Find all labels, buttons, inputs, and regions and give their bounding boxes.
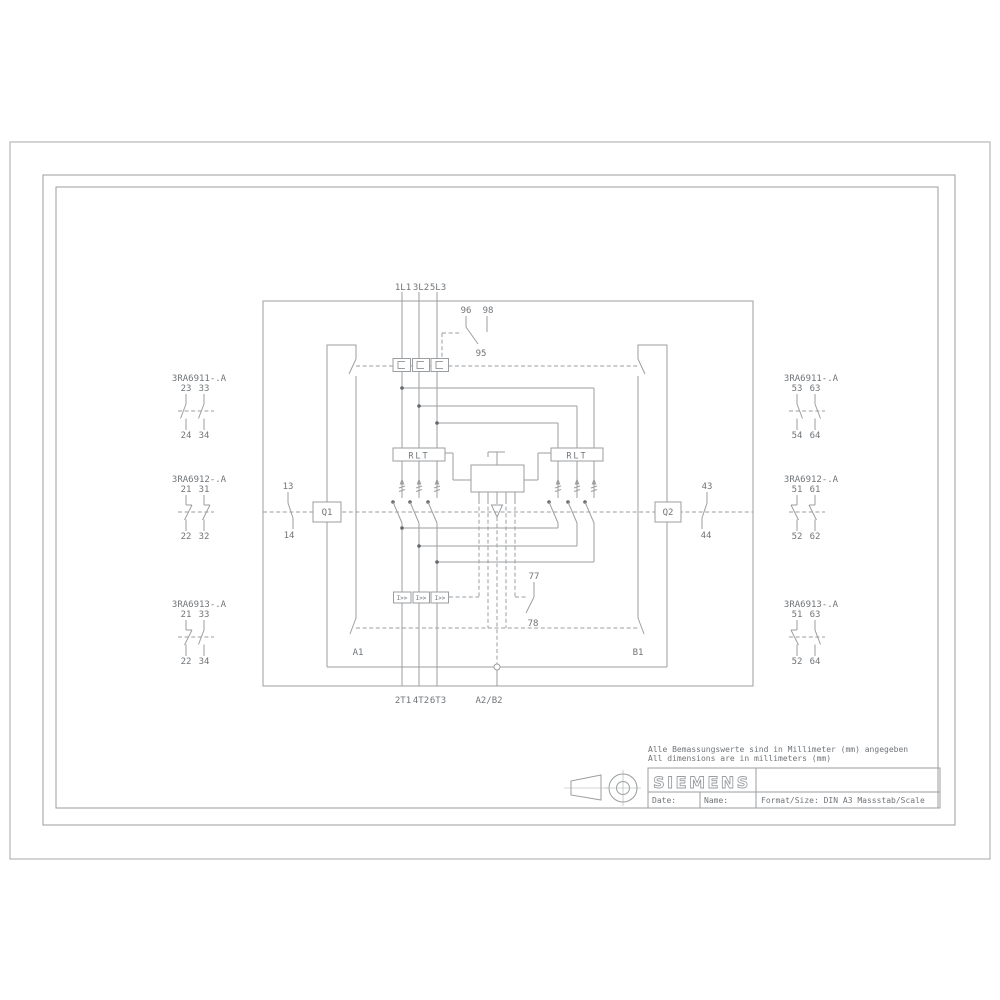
trip-label-3: I>> <box>435 595 446 602</box>
aux-block-name: 3RA6912-.A <box>784 475 839 485</box>
rlt-label-right: RLT <box>566 452 587 462</box>
drawing-canvas: 96 98 95 RLT RLT <box>0 0 1000 1000</box>
terminal-43: 43 <box>702 482 713 492</box>
aux-terminal: 61 <box>810 485 821 495</box>
siemens-logo: SIEMENS <box>653 773 751 792</box>
aux-block-name: 3RA6911-.A <box>784 374 839 384</box>
q2-label: Q2 <box>663 508 674 518</box>
aux-block-right-3: 3RA6913-.A 51 63 52 64 <box>784 600 839 667</box>
module-control-lines <box>449 500 528 664</box>
aux-terminal: 63 <box>810 384 821 394</box>
aux-terminal: 34 <box>199 431 210 441</box>
aux-terminal: 51 <box>792 610 803 620</box>
aux-terminal: 63 <box>810 610 821 620</box>
aux-terminal: 23 <box>181 384 192 394</box>
terminal-13: 13 <box>283 482 294 492</box>
aux-terminal: 54 <box>792 431 803 441</box>
aux-terminal: 34 <box>199 657 210 667</box>
terminal-a1: A1 <box>353 648 364 658</box>
disconnect-switch <box>393 359 449 372</box>
aux-terminal: 22 <box>181 657 192 667</box>
aux-contact-77-78: 77 78 <box>526 572 539 629</box>
aux-block-name: 3RA6912-.A <box>172 475 227 485</box>
schematic-svg: 96 98 95 RLT RLT <box>0 0 1000 1000</box>
aux-block-name: 3RA6911-.A <box>172 374 227 384</box>
electronics-module <box>445 452 551 686</box>
aux-terminal: 22 <box>181 532 192 542</box>
terminal-1l1: 1L1 <box>395 283 411 293</box>
aux-block-left-2: 3RA6912-.A 21 31 22 32 <box>172 475 227 542</box>
terminal-2t1: 2T1 <box>395 696 411 706</box>
aux-terminal: 24 <box>181 431 192 441</box>
terminal-14: 14 <box>284 531 295 541</box>
terminal-95: 95 <box>476 349 487 359</box>
aux-terminal: 62 <box>810 532 821 542</box>
contactor-q2: 43 44 Q2 <box>655 482 712 541</box>
module-pins <box>479 492 515 500</box>
terminal-98: 98 <box>483 306 494 316</box>
aux-block-left-1: 3RA6911-.A 23 33 24 34 <box>172 374 227 441</box>
aux-block-name: 3RA6913-.A <box>784 600 839 610</box>
terminal-96: 96 <box>461 306 472 316</box>
coil-triangle-icon <box>492 505 503 517</box>
q1-label: Q1 <box>322 508 333 518</box>
terminal-5l3: 5L3 <box>430 283 446 293</box>
aux-terminal: 51 <box>792 485 803 495</box>
aux-block-name: 3RA6913-.A <box>172 600 227 610</box>
aux-terminal: 21 <box>181 485 192 495</box>
name-label: Name: <box>704 796 728 805</box>
aux-terminal: 64 <box>810 431 821 441</box>
note-english: All dimensions are in millimeters (mm) <box>648 754 831 763</box>
terminal-b1: B1 <box>633 648 644 658</box>
aux-block-left-3: 3RA6913-.A 21 33 22 34 <box>172 600 227 667</box>
terminal-3l2: 3L2 <box>413 283 429 293</box>
aux-terminal: 53 <box>792 384 803 394</box>
aux-block-right-2: 3RA6912-.A 51 61 52 62 <box>784 475 839 542</box>
current-sensor-right: RLT <box>551 448 603 462</box>
title-block: Alle Bemassungswerte sind in Millimeter … <box>648 745 940 808</box>
aux-terminal: 33 <box>199 384 210 394</box>
coil-terminal-node <box>494 664 500 670</box>
aux-terminal: 52 <box>792 532 803 542</box>
terminal-4t2: 4T2 <box>413 696 429 706</box>
trip-label-2: I>> <box>416 595 427 602</box>
aux-terminal: 21 <box>181 610 192 620</box>
aux-terminal: 32 <box>199 532 210 542</box>
aux-block-right-1: 3RA6911-.A 53 63 54 64 <box>784 374 839 441</box>
date-label: Date: <box>652 796 676 805</box>
rlt-label-left: RLT <box>408 452 429 462</box>
note-german: Alle Bemassungswerte sind in Millimeter … <box>648 745 908 754</box>
overload-contact: 96 98 95 <box>461 306 494 359</box>
aux-terminal: 52 <box>792 657 803 667</box>
terminal-6t3: 6T3 <box>430 696 446 706</box>
aux-terminal: 31 <box>199 485 210 495</box>
terminal-78: 78 <box>528 619 539 629</box>
terminal-44: 44 <box>701 531 712 541</box>
cone-icon <box>571 775 601 800</box>
aux-terminal: 64 <box>810 657 821 667</box>
trip-label-1: I>> <box>397 595 408 602</box>
projection-symbol <box>564 770 641 806</box>
current-sensor-left: RLT <box>393 448 445 462</box>
terminal-77: 77 <box>529 572 540 582</box>
magnetic-trip: I>> I>> I>> <box>394 592 449 603</box>
aux-terminal: 33 <box>199 610 210 620</box>
format-label: Format/Size: DIN A3 Massstab/Scale <box>761 796 925 805</box>
terminal-labels: 1L1 3L2 5L3 2T1 4T2 6T3 A2/B2 <box>395 283 503 706</box>
terminal-a2b2: A2/B2 <box>475 696 502 706</box>
